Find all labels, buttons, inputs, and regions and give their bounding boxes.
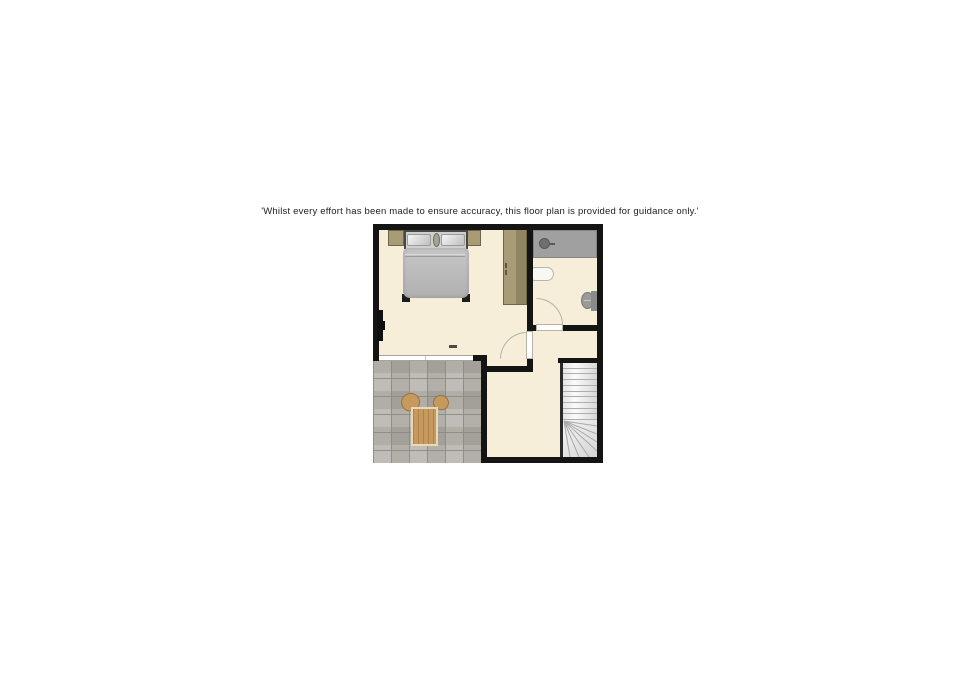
duvet-fold <box>405 254 465 257</box>
bedroom-door-leaf <box>526 331 533 359</box>
bed-duvet <box>403 248 469 298</box>
pillow <box>407 234 431 246</box>
page: 'Whilst every effort has been made to en… <box>0 0 960 679</box>
window-handle <box>449 345 457 348</box>
wall-landing-north <box>487 366 533 372</box>
terrace-table <box>411 407 438 446</box>
disclaimer-text: 'Whilst every effort has been made to en… <box>0 206 960 217</box>
staircase-winder <box>563 420 597 457</box>
shower-head <box>539 238 550 249</box>
wall-north <box>373 224 603 230</box>
bathroom-door-leaf <box>536 324 563 331</box>
staircase-treads <box>563 363 597 420</box>
bedside-unit <box>466 230 481 246</box>
stairs-wall-top <box>558 358 597 363</box>
bedside-unit <box>388 230 404 246</box>
wall-bedroom-bathroom <box>527 224 533 331</box>
wall-east <box>597 224 603 463</box>
wardrobe-handle <box>505 270 507 275</box>
bed-headboard <box>404 230 468 249</box>
pillow <box>441 234 465 246</box>
stairs-wall-left <box>560 363 563 457</box>
shower-arm <box>550 243 555 245</box>
patio-window <box>379 355 473 361</box>
winder-fan-lines <box>563 420 597 457</box>
floor-plan <box>373 224 603 463</box>
wall-south <box>481 457 603 463</box>
washbasin <box>532 267 554 281</box>
window-mullion <box>425 356 426 360</box>
wall-bathroom-south-right <box>563 325 597 331</box>
double-bed <box>404 230 468 302</box>
wardrobe-handle <box>505 263 507 268</box>
tv-mount <box>383 321 385 330</box>
cushion <box>433 233 440 247</box>
shower <box>533 230 597 258</box>
wardrobe <box>503 228 527 305</box>
toilet-seat-line <box>584 300 591 301</box>
